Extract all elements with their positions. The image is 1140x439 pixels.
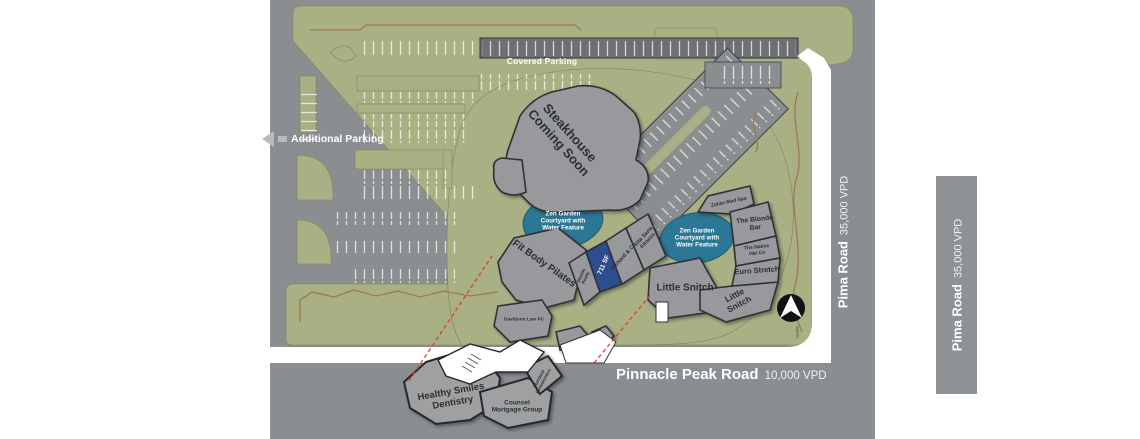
- additional-parking-label: Additional Parking: [262, 131, 384, 147]
- zen-garden-label-1: Zen Garden Courtyard with Water Feature: [541, 210, 585, 231]
- covered-parking-label: Covered Parking: [507, 57, 578, 67]
- tenant-davidson-law: Davidson Law PC: [504, 317, 544, 322]
- pima-road-label-sidebar: Pima Road 35,000 VPD: [950, 219, 965, 352]
- covered-parking-structure: [480, 38, 798, 58]
- pinnacle-peak-road-label: Pinnacle Peak Road 10,000 VPD: [616, 366, 827, 383]
- north-label: NORTH: [795, 326, 799, 339]
- tenant-little-snitch: Little Snitch: [656, 282, 713, 293]
- left-arrow-icon: [262, 131, 274, 147]
- north-parking-notch: [705, 62, 781, 88]
- site-plan-page: NORTH Covered Parking Additional Parking…: [0, 0, 1140, 439]
- tenant-counsel-mortgage: Counsel Mortgage Group: [492, 400, 543, 415]
- left-arrow-shaft: [278, 136, 287, 142]
- zen-garden-label-2: Zen Garden Courtyard with Water Feature: [675, 227, 719, 248]
- pima-road-label-map: Pima Road 35,000 VPD: [836, 176, 851, 309]
- building-steakhouse-annex: [494, 158, 526, 195]
